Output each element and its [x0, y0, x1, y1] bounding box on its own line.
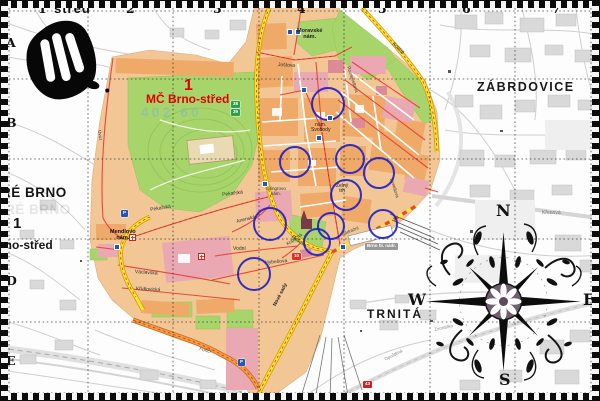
grunge-logo: [18, 14, 109, 110]
film-strip-border-right: [592, 0, 600, 401]
river-svitava: [436, 92, 461, 206]
film-strip-border-bottom: [0, 393, 600, 401]
spilberk-castle: [187, 136, 235, 165]
brno-city-map: 10433839Brno hl. nádr.PP středZÁBRDOVICE…: [0, 0, 600, 401]
outside-building-blocks-pale: [455, 120, 590, 283]
map-artwork: [0, 0, 600, 401]
film-strip-border-top: [0, 0, 600, 8]
film-strip-border-left: [0, 0, 8, 401]
